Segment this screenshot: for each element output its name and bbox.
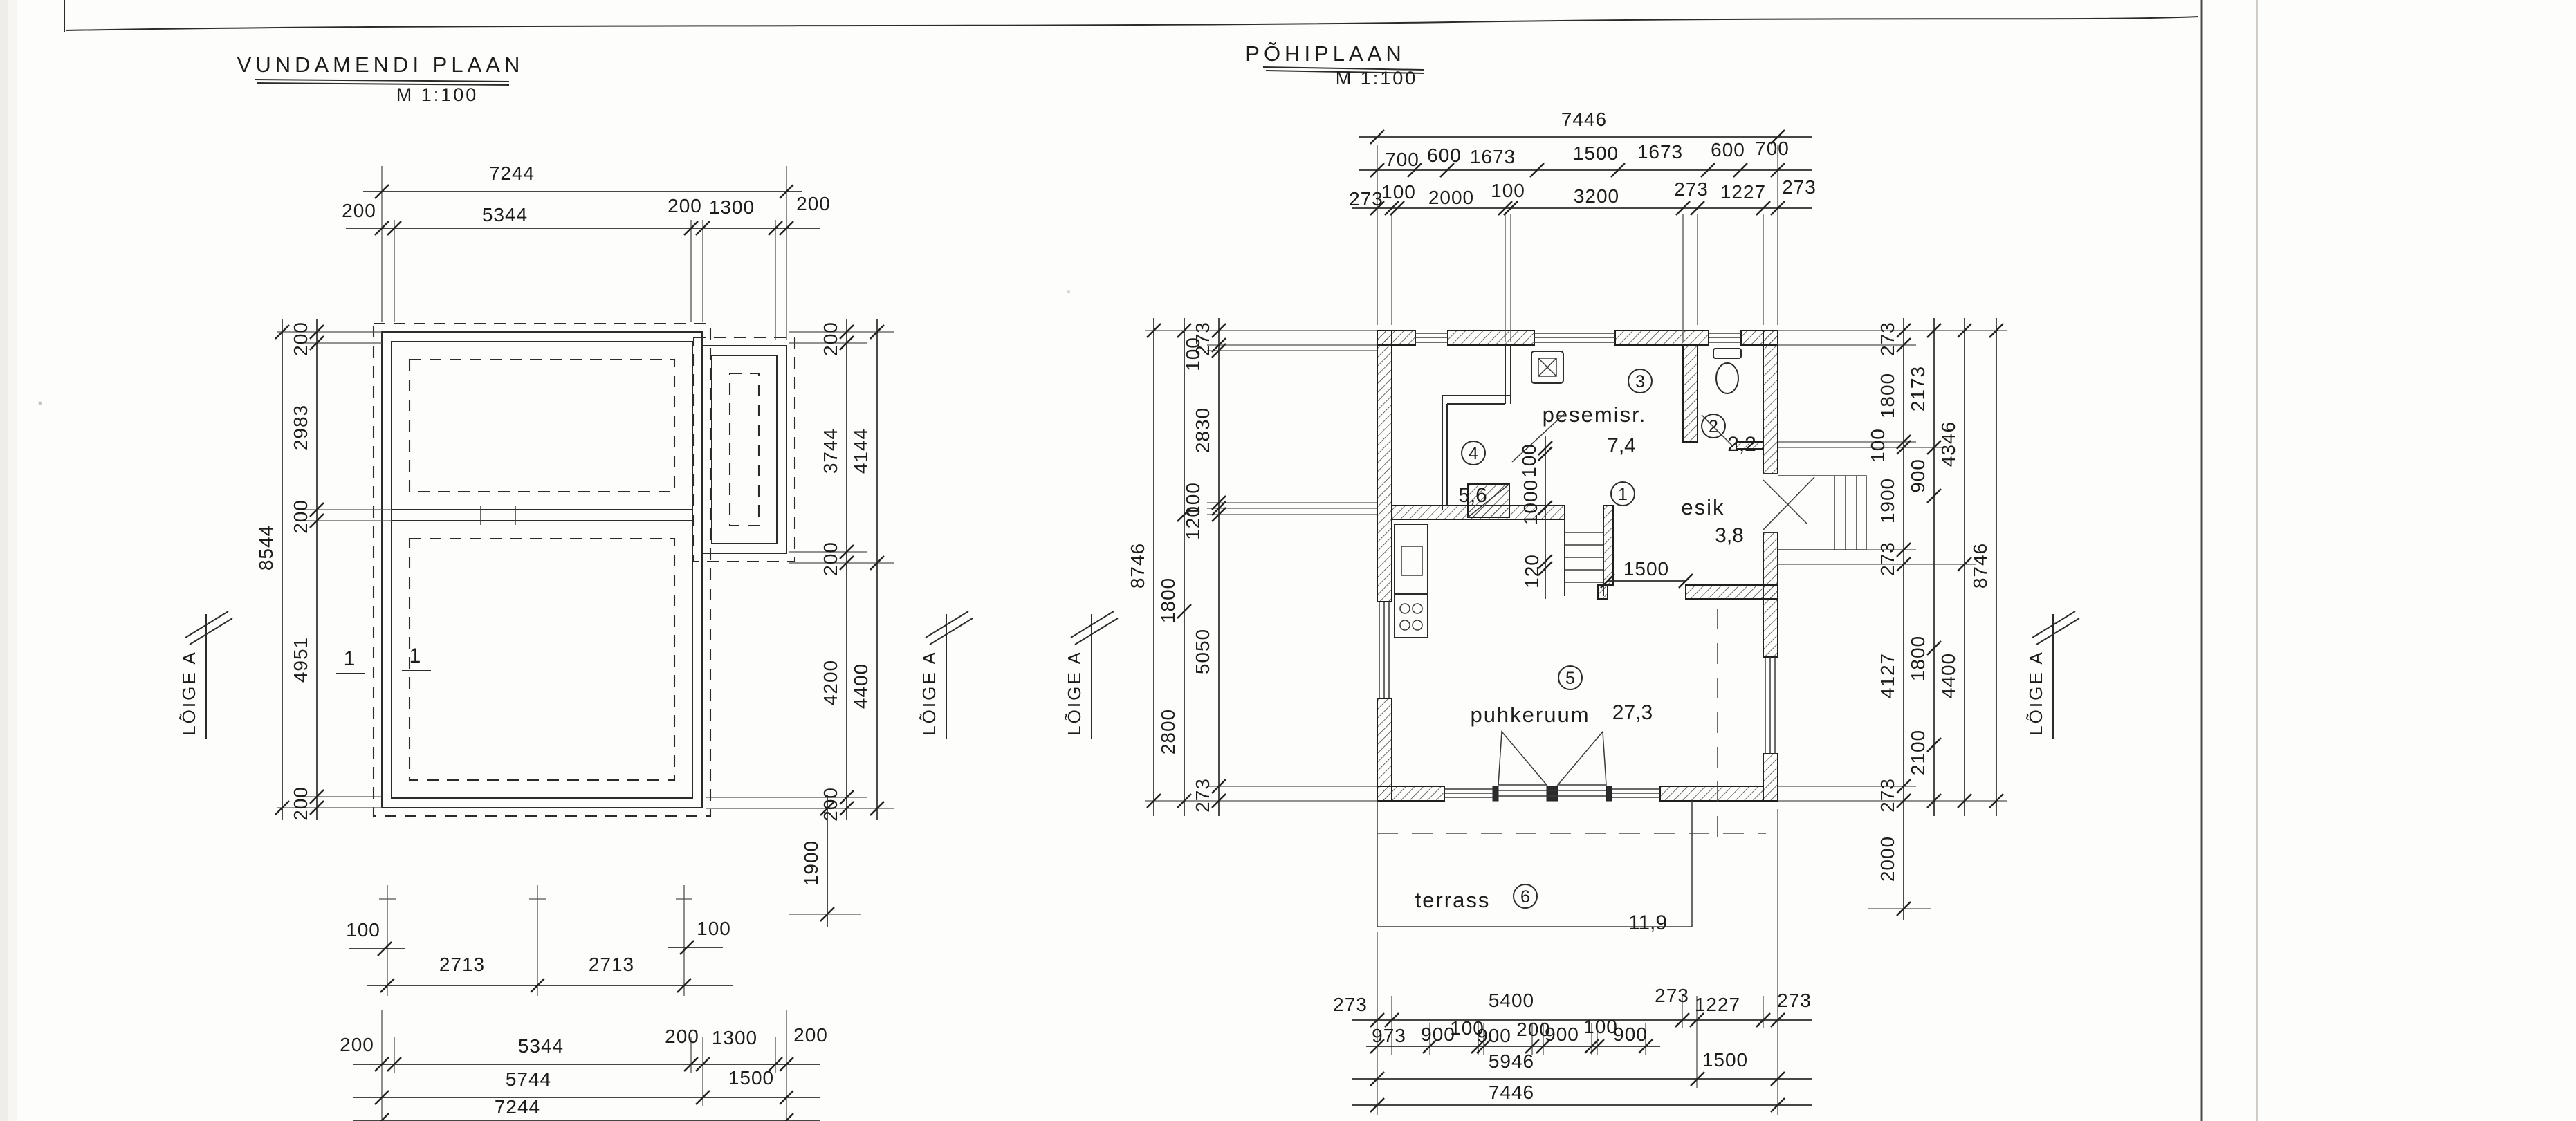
dim-label: 600: [1427, 145, 1462, 166]
dim-label: 900: [1907, 458, 1929, 493]
room-circle-sauna: 4: [1462, 441, 1485, 465]
dim-label: 200: [290, 499, 311, 534]
dim-label: 8746: [1969, 543, 1991, 589]
washing-machine-icon: [1531, 351, 1563, 383]
axis-label-1: 1: [410, 645, 421, 667]
dim-label: 100: [346, 919, 380, 941]
main-title: PÕHIPLAAN M 1:100: [1245, 41, 1424, 89]
dim-label: 1500: [1623, 558, 1669, 580]
dim-label: 273: [1674, 178, 1709, 200]
dim-label: 2830: [1192, 407, 1213, 453]
dim-label: 100: [1491, 180, 1525, 201]
section-label: LÕIGE A: [919, 650, 939, 736]
dim-label: 973: [1372, 1025, 1406, 1046]
dim-label: 1227: [1695, 994, 1740, 1015]
dim-label: 273: [1655, 985, 1689, 1006]
dim-label: 273: [1782, 176, 1816, 198]
room-number: 2: [1709, 417, 1718, 436]
dim-label: 4400: [1938, 653, 1959, 698]
dim-label: 200: [340, 1034, 374, 1055]
room-number: 6: [1520, 887, 1530, 907]
section-marker-left: LÕIGE A: [1064, 611, 1118, 739]
room-circle-puhkeruum: 5: [1558, 666, 1582, 689]
room-area: 7,4: [1607, 434, 1636, 457]
dim-label: 2800: [1157, 709, 1179, 754]
toilet-icon: [1713, 349, 1741, 393]
dim-label: 273: [1877, 322, 1898, 356]
dim-label: 8544: [255, 525, 277, 571]
section-marker-left: LÕIGE A: [178, 611, 232, 739]
dim-label: 900: [1477, 1025, 1511, 1046]
dim-label: 5344: [518, 1035, 564, 1057]
dim-label: 5050: [1192, 629, 1213, 674]
dim-label: 200: [820, 322, 841, 356]
dim-label: 900: [1613, 1023, 1648, 1045]
dim-label: 1800: [1877, 373, 1898, 418]
dim-label: 1673: [1470, 146, 1516, 167]
dim-label: 2713: [439, 954, 485, 975]
entry-porch: [1778, 476, 1866, 550]
dim-label: 4951: [290, 637, 311, 683]
dim-label: 5946: [1489, 1050, 1534, 1072]
dim-label: 200: [665, 1026, 699, 1047]
dim-label: 100: [697, 918, 731, 939]
dim-label: 5744: [506, 1068, 551, 1090]
room-number: 4: [1469, 444, 1478, 463]
kitchen-counter-icon: [1395, 524, 1428, 593]
dim-label: 7446: [1489, 1082, 1534, 1103]
foundation-outline: [374, 324, 795, 816]
dim-label: 7446: [1561, 109, 1607, 130]
dim-label: 1800: [1157, 577, 1179, 623]
main-dims-right: 273 1800 100 1900 273 4127 273 2000 2173…: [1778, 318, 2007, 920]
dim-label: 2000: [1428, 187, 1474, 208]
room-circle-terrass: 6: [1514, 884, 1537, 908]
dim-label: 5400: [1489, 990, 1534, 1011]
section-label: LÕIGE A: [2025, 650, 2046, 736]
dim-label: 2100: [1907, 730, 1929, 775]
section-marker-right: LÕIGE A: [2025, 611, 2079, 739]
dim-label: 1500: [1573, 142, 1619, 164]
main-scale-label: M 1:100: [1336, 68, 1418, 89]
dim-label: 1000: [1520, 479, 1541, 525]
dim-label: 200: [290, 786, 311, 821]
room-area: 11,9: [1628, 911, 1667, 934]
room-circle-esik: 1: [1611, 482, 1635, 506]
interior-walls: [1392, 345, 1778, 599]
dim-label: 4144: [850, 428, 872, 474]
dim-label: 273: [1877, 541, 1898, 576]
dim-label: 8746: [1127, 543, 1148, 589]
dim-label: 200: [342, 200, 376, 221]
dim-label: 4346: [1938, 421, 1959, 467]
dim-label: 200: [290, 322, 311, 356]
dim-label: 100: [1182, 337, 1204, 371]
dim-label: 7244: [495, 1096, 540, 1118]
foundation-scale-label: M 1:100: [396, 84, 479, 105]
dim-label: 1800: [1907, 636, 1929, 681]
dim-label: 3200: [1574, 185, 1619, 207]
dim-label: 273: [1333, 994, 1368, 1015]
dim-label: 3744: [820, 428, 841, 474]
dim-label: 1673: [1637, 141, 1683, 163]
room-area: 5,6: [1458, 484, 1487, 507]
dim-label: 200: [796, 193, 831, 214]
foundation-dims-left: 200 2983 200 4951 200 8544: [255, 319, 392, 821]
room-circle-pesemisruum: 3: [1628, 369, 1652, 393]
terrace-outline: [1377, 609, 1766, 927]
dim-label: 4400: [850, 663, 872, 709]
main-floor-plan: PÕHIPLAAN M 1:100: [1064, 41, 2079, 1115]
room-area: 27,3: [1612, 701, 1653, 724]
room-number: 5: [1565, 669, 1575, 688]
dim-label: 600: [1711, 139, 1745, 160]
dim-label: 700: [1385, 149, 1419, 170]
dim-label: 4200: [820, 660, 841, 705]
dim-label: 200: [668, 195, 702, 216]
dim-label: 273: [1877, 778, 1898, 813]
dim-label: 2983: [290, 405, 311, 450]
main-dims-top: 7446 700 600 1673 1500 1673 600 700 273 …: [1349, 109, 1816, 342]
dim-label: 1300: [712, 1027, 757, 1048]
dim-label: 2000: [1877, 836, 1898, 882]
section-label: LÕIGE A: [1064, 650, 1085, 736]
kitchen-stove-icon: [1395, 595, 1428, 638]
dim-label: 2713: [589, 954, 634, 975]
dim-label: 1900: [1877, 478, 1898, 524]
foundation-dims-bottom: 100 100 2713 2713 200 5344 200 1300 200 …: [340, 885, 828, 1121]
dim-label: 100: [1381, 181, 1416, 203]
scanned-drawing-page: VUNDAMENDI PLAAN M 1:100 1 1: [0, 0, 2576, 1121]
room-area: 2,2: [1727, 433, 1756, 456]
dim-label: 100: [1867, 428, 1888, 463]
foundation-title-text: VUNDAMENDI PLAAN: [237, 53, 524, 77]
dim-label: 1900: [800, 840, 822, 886]
foundation-plan: VUNDAMENDI PLAAN M 1:100 1 1: [178, 53, 973, 1121]
dim-label: 273: [1349, 188, 1383, 210]
room-name: pesemisr.: [1543, 402, 1647, 427]
axis-label-1: 1: [344, 647, 356, 670]
room-number: 1: [1618, 485, 1628, 504]
room-name: puhkeruum: [1470, 703, 1590, 727]
dim-label: 1500: [1702, 1049, 1748, 1071]
main-title-text: PÕHIPLAAN: [1245, 41, 1405, 66]
section-marker-right: LÕIGE A: [919, 611, 973, 739]
room-number: 3: [1635, 372, 1645, 391]
terrace-door-swings: [1498, 732, 1606, 785]
foundation-dims-top: 7244 200 5344 200 1300 200: [342, 163, 831, 340]
dim-label: 120: [1182, 506, 1204, 540]
room-name: terrass: [1415, 888, 1491, 912]
dim-label: 900: [1545, 1023, 1579, 1045]
foundation-axis-marks: 1 1: [336, 645, 431, 674]
dim-label: 100: [1518, 443, 1540, 478]
dim-label: 5344: [482, 204, 528, 225]
section-label: LÕIGE A: [178, 650, 199, 736]
dim-label: 200: [793, 1024, 828, 1046]
dim-label: 1300: [709, 196, 755, 218]
room-name: esik: [1681, 495, 1724, 519]
dim-label: 1500: [728, 1067, 774, 1088]
dim-label: 4127: [1877, 653, 1898, 698]
dim-label: 200: [820, 541, 841, 576]
foundation-dims-right: 200 3744 200 4200 200 4144 4400 1900: [706, 319, 894, 927]
dim-label: 1227: [1720, 181, 1766, 203]
room-labels: 1 esik 3,8 2 2,2 3 pesemisr. 7,4 4 5,6 5: [1415, 369, 1756, 934]
dim-label: 273: [1777, 990, 1812, 1011]
dim-label: 273: [1192, 778, 1213, 813]
main-dims-bottom: 273 5400 273 1227 273 973 900 100 900 20…: [1333, 809, 1812, 1115]
dim-label: 700: [1755, 138, 1790, 159]
dim-label: 120: [1521, 554, 1543, 589]
foundation-title: VUNDAMENDI PLAAN M 1:100: [237, 53, 524, 105]
dim-label: 2173: [1907, 366, 1929, 411]
room-area: 3,8: [1715, 524, 1744, 547]
room-circle-wc: 2: [1702, 414, 1725, 438]
dim-label: 7244: [489, 163, 535, 184]
blueprint-svg: VUNDAMENDI PLAAN M 1:100 1 1: [0, 0, 2576, 1121]
main-dims-left: 273 100 2830 100 120 5050 273 1800 2800 …: [1127, 318, 1377, 816]
